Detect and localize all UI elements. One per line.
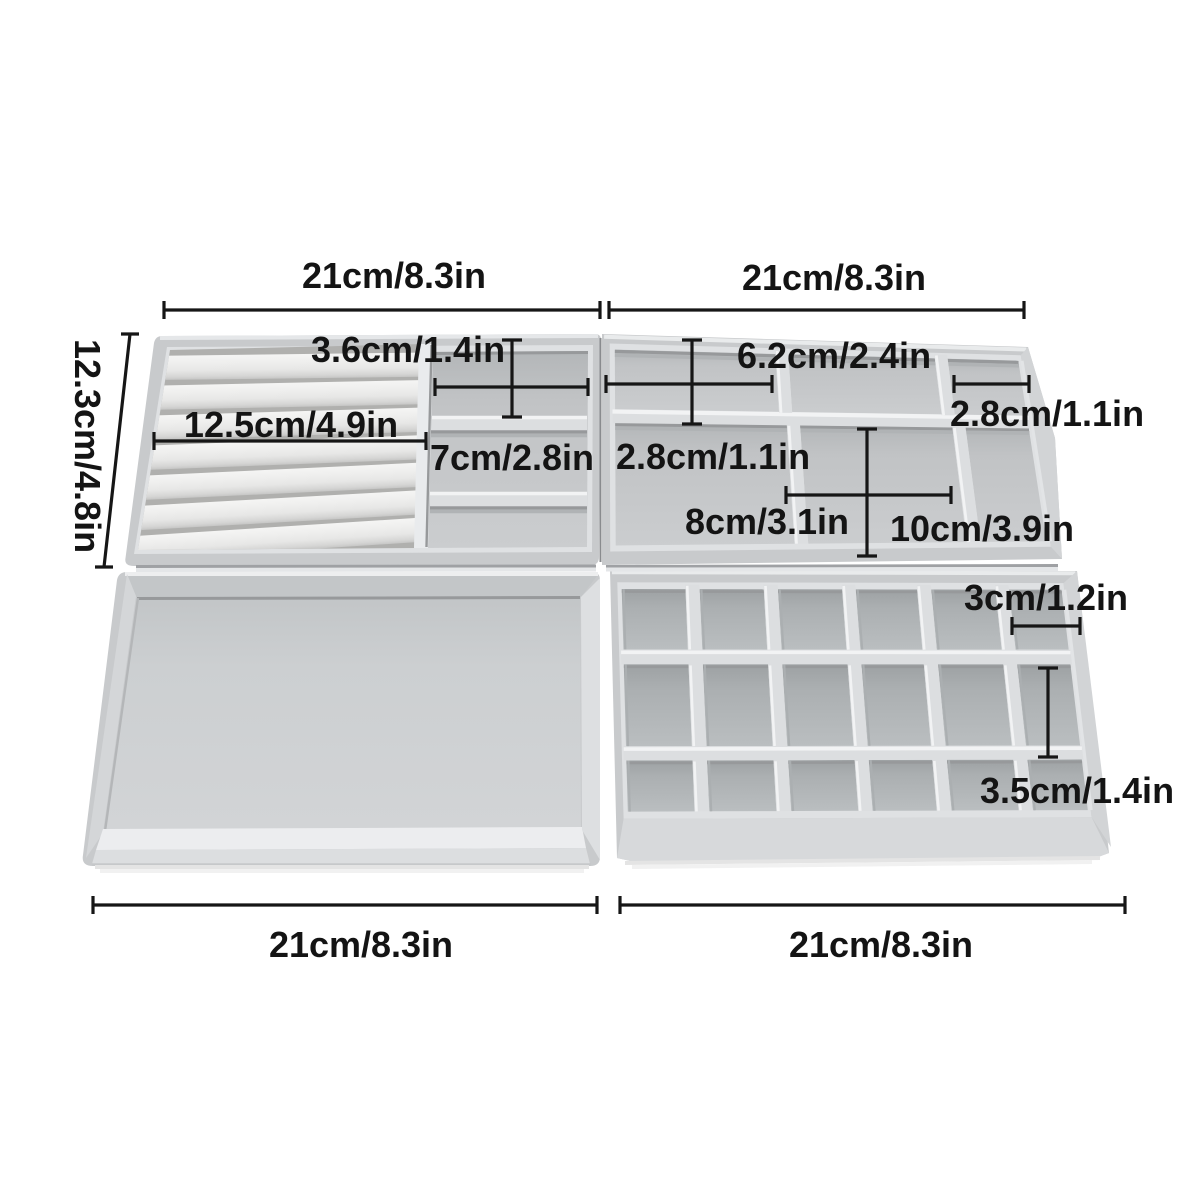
svg-text:7cm/2.8in: 7cm/2.8in [430,437,594,478]
svg-text:3.6cm/1.4in: 3.6cm/1.4in [311,329,505,370]
svg-text:21cm/8.3in: 21cm/8.3in [302,255,486,296]
svg-text:3.5cm/1.4in: 3.5cm/1.4in [980,770,1174,811]
svg-text:12.5cm/4.9in: 12.5cm/4.9in [184,404,398,445]
svg-text:2.8cm/1.1in: 2.8cm/1.1in [616,436,810,477]
svg-text:2.8cm/1.1in: 2.8cm/1.1in [950,393,1144,434]
svg-text:21cm/8.3in: 21cm/8.3in [789,924,973,965]
svg-text:3cm/1.2in: 3cm/1.2in [964,577,1128,618]
svg-text:12.3cm/4.8in: 12.3cm/4.8in [67,339,108,553]
svg-text:21cm/8.3in: 21cm/8.3in [742,257,926,298]
svg-text:6.2cm/2.4in: 6.2cm/2.4in [737,335,931,376]
svg-text:10cm/3.9in: 10cm/3.9in [890,508,1074,549]
svg-text:8cm/3.1in: 8cm/3.1in [685,501,849,542]
svg-text:21cm/8.3in: 21cm/8.3in [269,924,453,965]
